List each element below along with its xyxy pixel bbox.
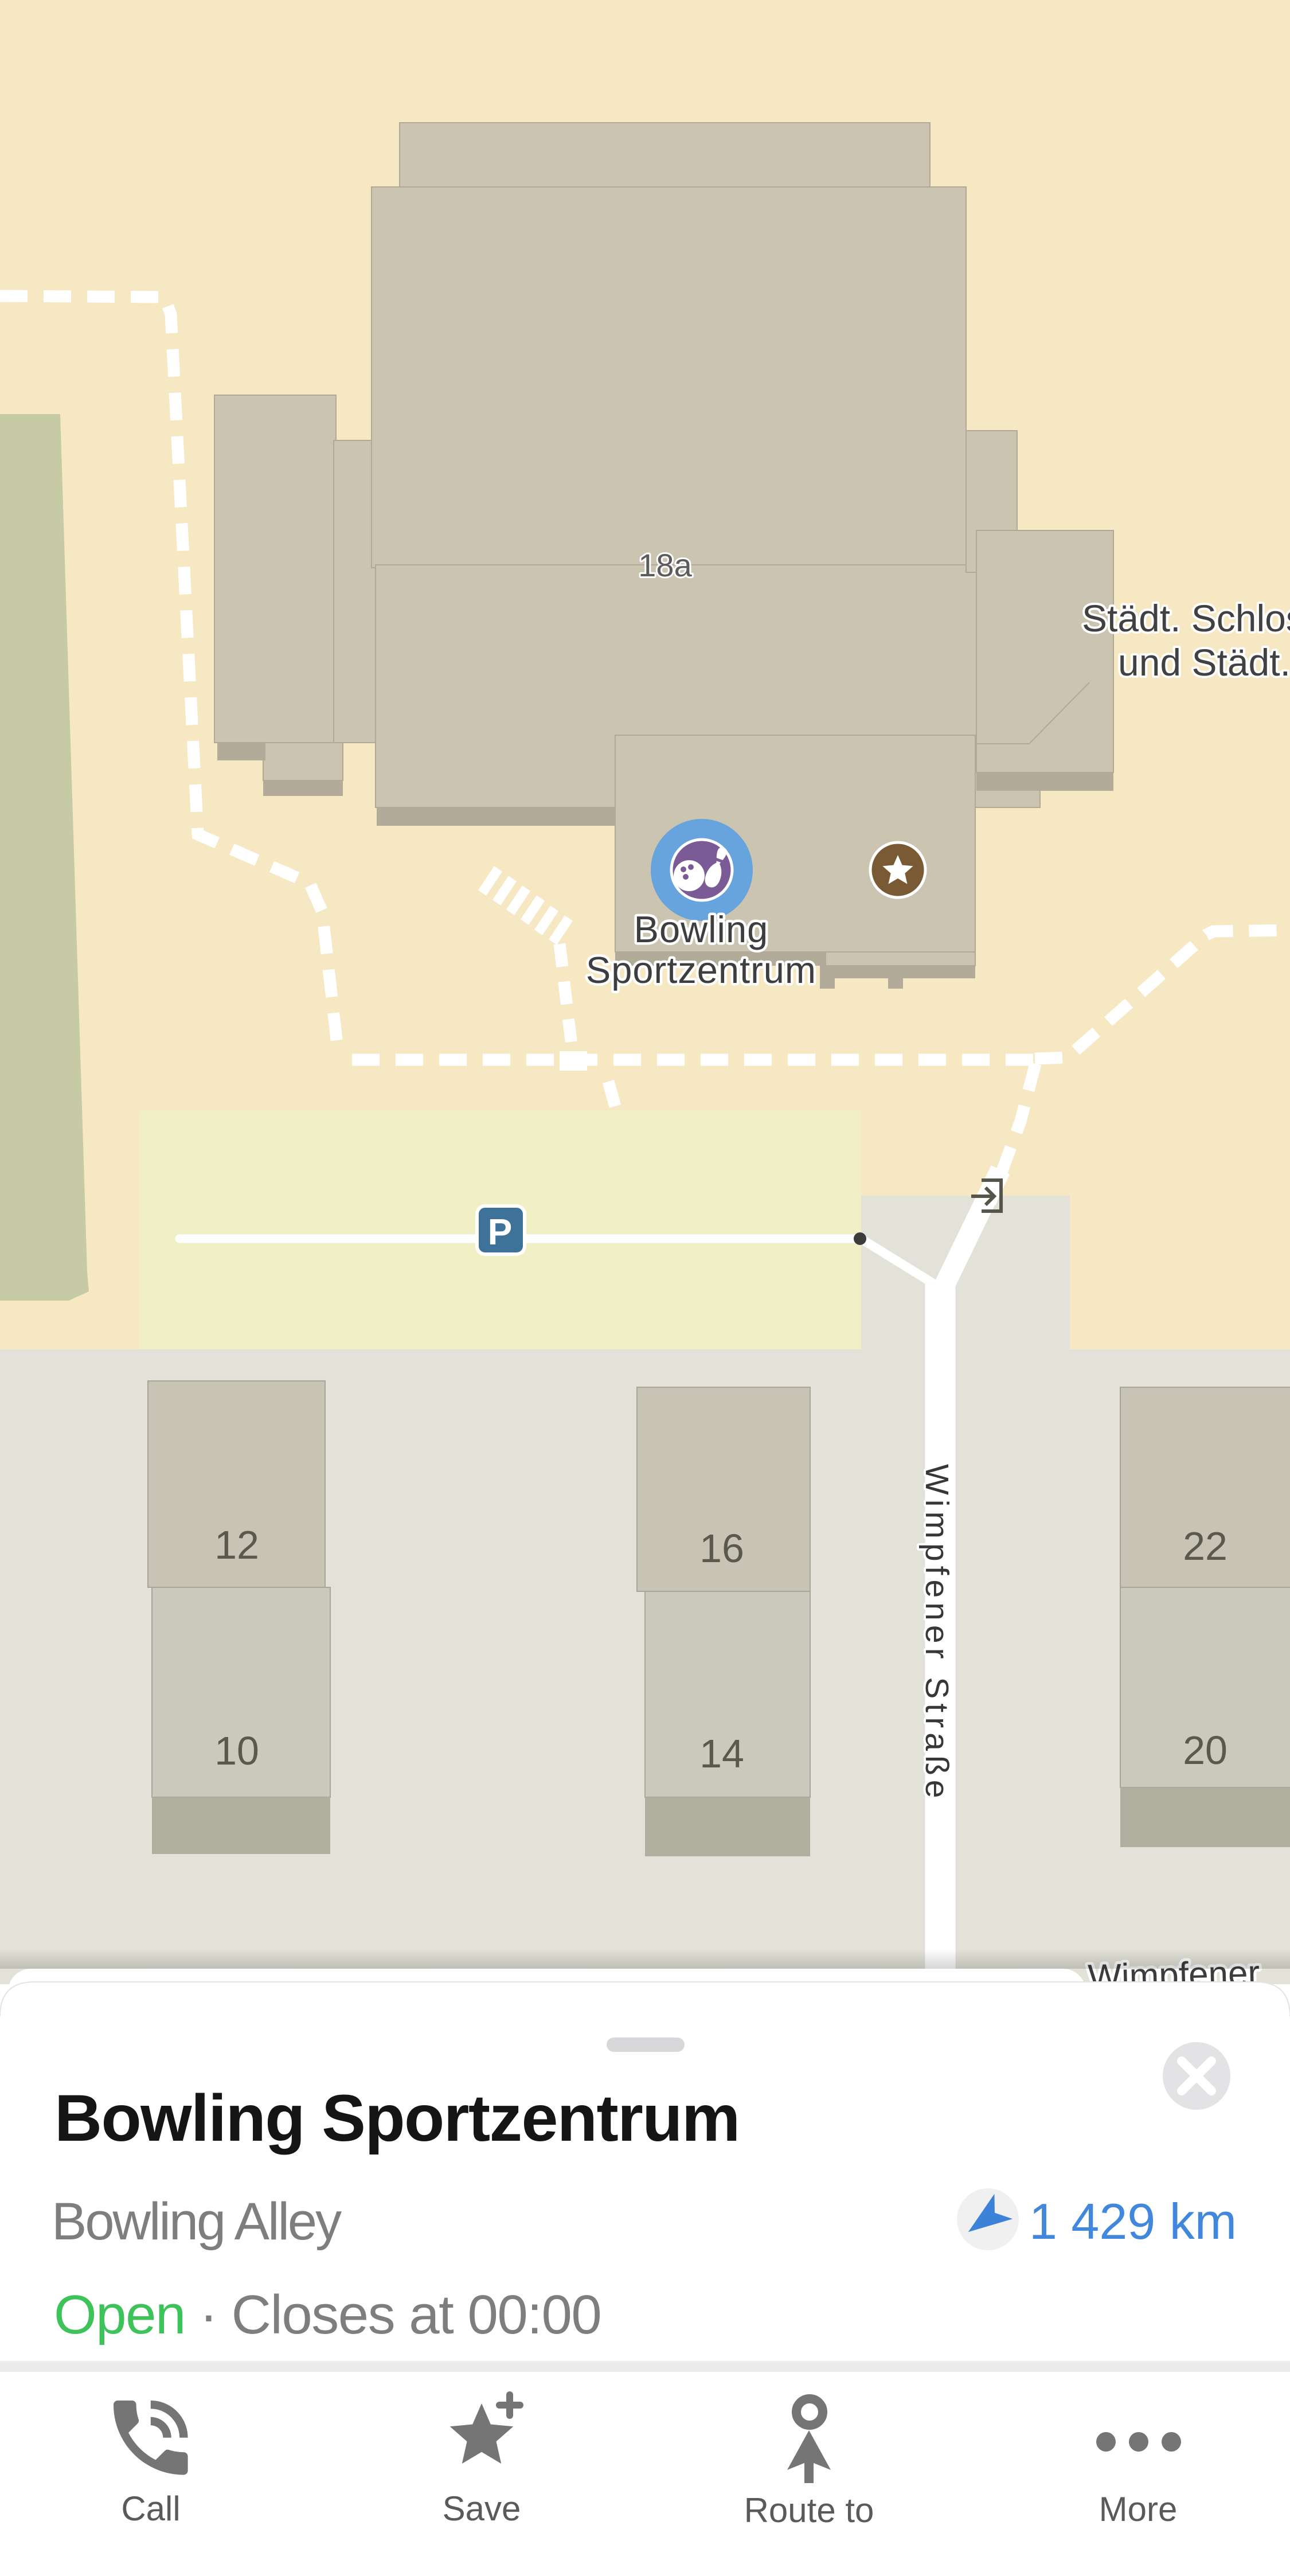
svg-text:16: 16 [699,1526,744,1571]
svg-text:Städt. Schloss: Städt. Schloss [1082,597,1290,639]
svg-text:P: P [488,1211,513,1252]
svg-text:und Städt.: und Städt. [1118,641,1290,684]
svg-text:Open · Closes at 00:00: Open · Closes at 00:00 [54,2284,601,2345]
svg-text:10: 10 [214,1728,259,1773]
svg-text:Bowling Sportzentrum: Bowling Sportzentrum [54,2082,740,2155]
svg-text:20: 20 [1183,1728,1228,1773]
svg-text:More: More [1099,2490,1178,2528]
svg-text:12: 12 [214,1523,259,1567]
svg-text:Wimpfener Straße: Wimpfener Straße [918,1464,955,1802]
svg-text:14: 14 [699,1731,744,1776]
svg-text:Save: Save [443,2489,521,2528]
svg-text:Call: Call [121,2489,180,2528]
svg-text:22: 22 [1183,1524,1228,1568]
svg-text:18a: 18a [638,547,692,583]
svg-text:Sportzentrum: Sportzentrum [586,949,816,991]
svg-text:Bowling Alley: Bowling Alley [52,2192,342,2251]
svg-text:Bowling: Bowling [634,908,769,950]
svg-text:Route to: Route to [744,2491,874,2530]
svg-text:1 429 km: 1 429 km [1029,2193,1237,2250]
